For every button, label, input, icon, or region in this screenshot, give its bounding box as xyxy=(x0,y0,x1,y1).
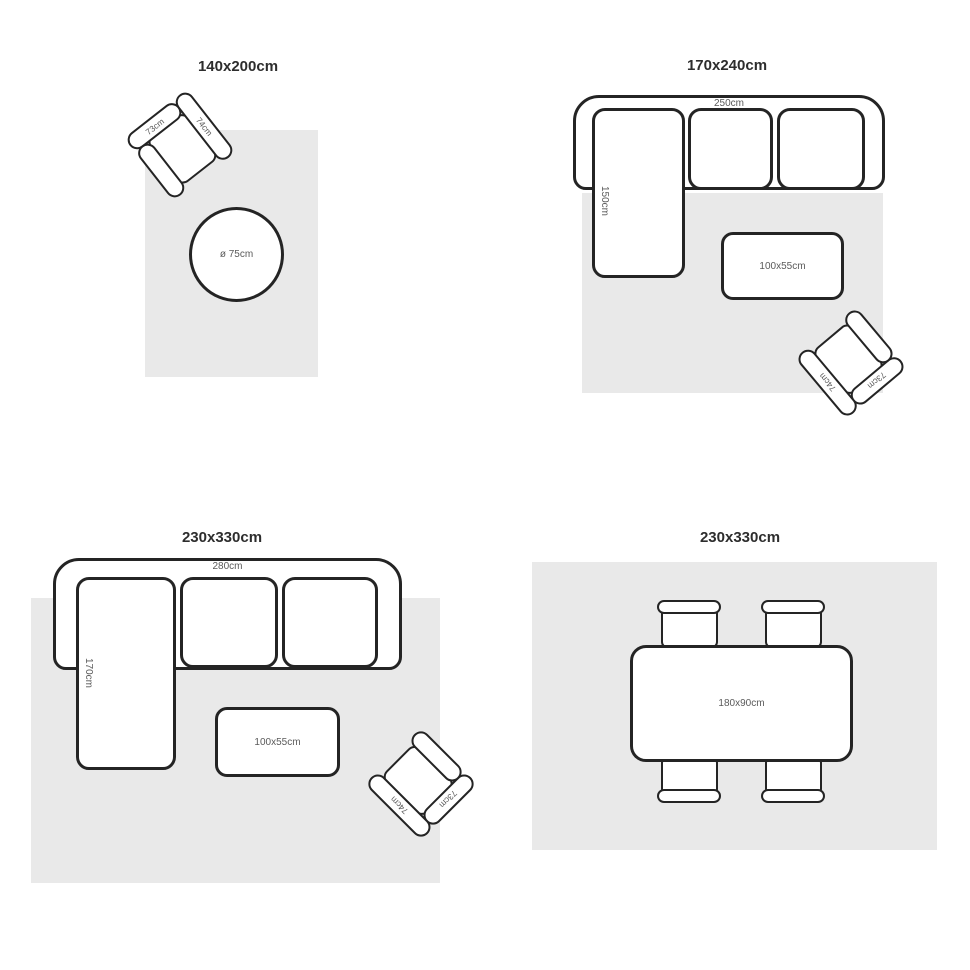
panel-title: 230x330cm xyxy=(700,529,780,546)
sofa-seat-cushion xyxy=(688,108,773,190)
dining-chair-seat xyxy=(765,608,822,648)
dining-chair-back xyxy=(657,600,721,614)
coffee-table: 100x55cm xyxy=(215,707,340,777)
sofa-chaise: 150cm xyxy=(592,108,685,278)
dining-chair-back xyxy=(657,789,721,803)
dining-chair-back xyxy=(761,600,825,614)
sofa-chaise-dimension: 150cm xyxy=(599,186,610,216)
sofa-chaise-dimension: 170cm xyxy=(83,658,94,688)
coffee-table-dimension: 100x55cm xyxy=(759,261,805,272)
rug-size-guide: 140x200cm 73cm 74cm ø 75cm 170x240cm 250… xyxy=(0,0,970,970)
round-side-table-dimension: ø 75cm xyxy=(220,249,253,260)
dining-chair-back xyxy=(761,789,825,803)
sofa-chaise: 170cm xyxy=(76,577,176,770)
coffee-table-dimension: 100x55cm xyxy=(254,737,300,748)
dining-table: 180x90cm xyxy=(630,645,853,762)
panel-title: 170x240cm xyxy=(687,57,767,74)
sofa-seat-cushion xyxy=(282,577,378,668)
panel-title: 140x200cm xyxy=(198,58,278,75)
sofa-seat-cushion xyxy=(777,108,865,190)
armchair-back-dimension: 73cm xyxy=(438,789,460,811)
sofa-width-dimension: 280cm xyxy=(212,561,242,572)
sofa-seat-cushion xyxy=(180,577,278,668)
round-side-table: ø 75cm xyxy=(189,207,284,302)
dining-table-dimension: 180x90cm xyxy=(718,698,764,709)
armchair-back-dimension: 73cm xyxy=(866,370,888,391)
coffee-table: 100x55cm xyxy=(721,232,844,300)
dining-chair-seat xyxy=(661,608,718,648)
panel-title: 230x330cm xyxy=(182,529,262,546)
